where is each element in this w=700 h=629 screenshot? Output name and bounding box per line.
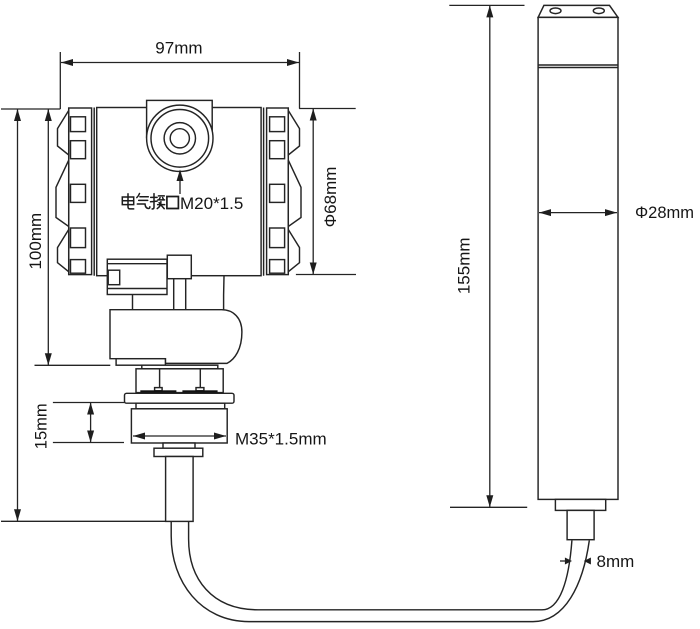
svg-text:97mm: 97mm [155,39,202,58]
svg-text:15mm: 15mm [32,403,50,449]
svg-text:8mm: 8mm [597,552,635,571]
svg-text:155mm: 155mm [454,237,473,294]
svg-text:Φ28mm: Φ28mm [635,204,694,222]
svg-text:100mm: 100mm [26,213,45,270]
svg-text:M20*1.5: M20*1.5 [180,194,243,213]
svg-text:M35*1.5mm: M35*1.5mm [235,429,327,448]
svg-text:Φ68mm: Φ68mm [321,167,340,228]
